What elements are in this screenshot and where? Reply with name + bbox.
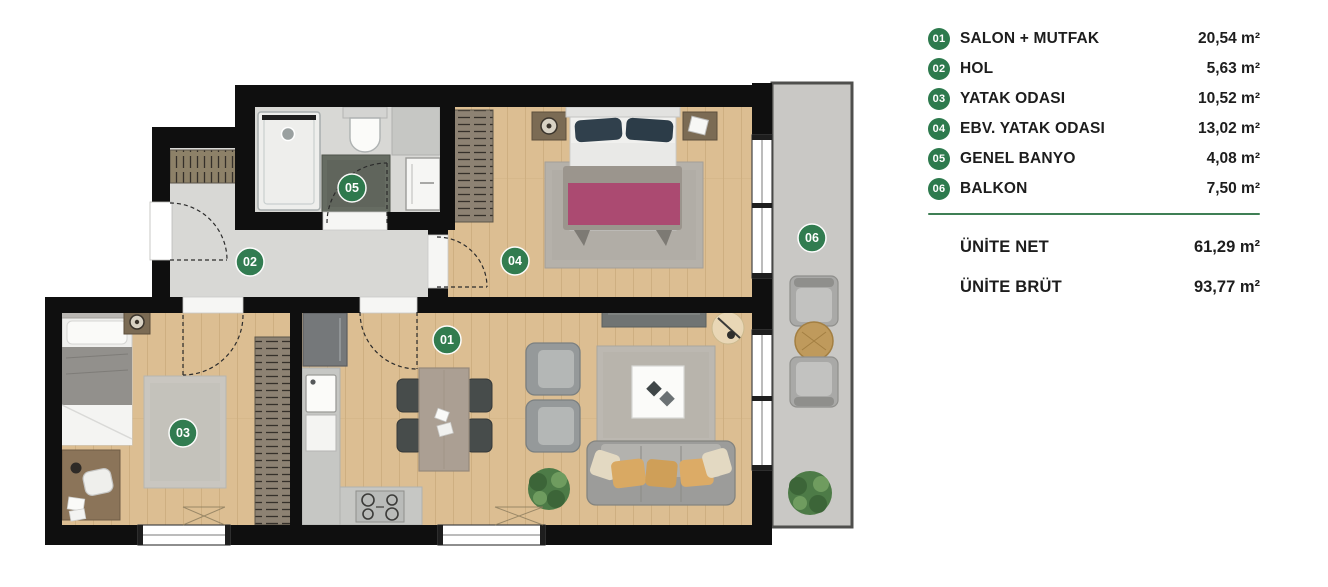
floor-plan-svg: 01 02 03 04 05 06 (40, 58, 870, 572)
bed-04-pink-throw (568, 183, 680, 225)
wall (752, 83, 772, 135)
unit-net-label: ÜNİTE NET (960, 238, 1049, 257)
unit-brut-label: ÜNİTE BRÜT (960, 278, 1062, 297)
shower-head-bar (262, 115, 316, 120)
bed-03-pillow (67, 321, 127, 344)
washing-machine (406, 158, 440, 210)
wardrobe-03 (255, 337, 292, 525)
wall (243, 297, 360, 313)
legend-area: 7,50 m² (1207, 180, 1260, 198)
unit-brut-value: 93,77 m² (1194, 278, 1260, 297)
desk-papers-2 (69, 509, 86, 521)
coat-rack (170, 150, 240, 183)
window-livingroom-south (438, 525, 545, 545)
bathroom-counter (392, 107, 440, 155)
wall (545, 525, 772, 545)
legend-badge: 01 (928, 28, 950, 50)
legend-label: GENEL BANYO (960, 150, 1076, 168)
entrance-opening (150, 202, 172, 260)
svg-text:03: 03 (176, 426, 190, 440)
faucet (310, 379, 315, 384)
legend-label: EBV. YATAK ODASI (960, 120, 1105, 138)
room-badge-04: 04 (501, 247, 529, 275)
room-badge-02: 02 (236, 248, 264, 276)
wall (45, 525, 138, 545)
legend-label: HOL (960, 60, 993, 78)
legend-area: 20,54 m² (1198, 30, 1260, 48)
window-bedroom03-south (138, 525, 230, 545)
sofa-cushion-1 (611, 458, 647, 489)
window-livingroom-east (752, 330, 772, 470)
wall (440, 85, 455, 230)
sofa-cushion-2 (645, 459, 678, 489)
wall (235, 85, 255, 230)
wall (752, 470, 772, 545)
room-badge-05: 05 (338, 174, 366, 202)
legend-badge: 04 (928, 118, 950, 140)
toilet-cistern (343, 107, 387, 118)
wall (235, 85, 772, 107)
wardrobe-04 (450, 110, 493, 222)
shower-tray (258, 112, 320, 210)
bed-03-sheet (62, 405, 132, 445)
legend-area: 4,08 m² (1207, 150, 1260, 168)
wall (45, 297, 62, 545)
legend-area: 5,63 m² (1207, 60, 1260, 78)
desk-lamp (71, 463, 82, 474)
kitchen-sink (306, 375, 336, 412)
legend-row: 06 BALKON 7,50 m² (928, 174, 1260, 204)
pillow-right (625, 117, 673, 142)
plant-balcony (788, 471, 832, 515)
wall (752, 278, 772, 330)
window-bedroom04-east (752, 135, 772, 278)
room-badge-03: 03 (169, 419, 197, 447)
legend: 01 SALON + MUTFAK 20,54 m² 02 HOL 5,63 m… (928, 24, 1260, 307)
bedroom03-door-opening (183, 297, 243, 313)
legend-badge: 06 (928, 178, 950, 200)
legend-label: YATAK ODASI (960, 90, 1065, 108)
legend-label: SALON + MUTFAK (960, 30, 1099, 48)
legend-badge: 02 (928, 58, 950, 80)
shower-drain (282, 128, 295, 141)
livingroom-door-opening (360, 297, 417, 313)
bedroom04-door-opening (428, 235, 448, 288)
legend-total-row: ÜNİTE BRÜT 93,77 m² (928, 267, 1260, 307)
svg-text:04: 04 (508, 254, 522, 268)
wall (290, 313, 302, 525)
svg-text:05: 05 (345, 181, 359, 195)
room-badge-01: 01 (433, 326, 461, 354)
dining-chair-r2 (466, 419, 492, 452)
wall (417, 297, 752, 313)
legend-area: 13,02 m² (1198, 120, 1260, 138)
hall-fixtures (170, 150, 240, 183)
svg-text:02: 02 (243, 255, 257, 269)
unit-net-value: 61,29 m² (1194, 238, 1260, 257)
legend-area: 10,52 m² (1198, 90, 1260, 108)
toilet-bowl (350, 118, 380, 152)
legend-row: 01 SALON + MUTFAK 20,54 m² (928, 24, 1260, 54)
wall (45, 297, 183, 313)
legend-row: 03 YATAK ODASI 10,52 m² (928, 84, 1260, 114)
wall (152, 148, 170, 202)
svg-text:06: 06 (805, 231, 819, 245)
legend-row: 02 HOL 5,63 m² (928, 54, 1260, 84)
room-badge-06: 06 (798, 224, 826, 252)
floor-plan: 01 02 03 04 05 06 (40, 58, 870, 572)
wall (428, 230, 448, 235)
legend-badge: 03 (928, 88, 950, 110)
bathroom-door-opening (323, 212, 387, 230)
svg-text:01: 01 (440, 333, 454, 347)
legend-badge: 05 (928, 148, 950, 170)
wall (152, 127, 240, 148)
bed-04-sheet (571, 143, 675, 167)
floor-plan-page: 01 02 03 04 05 06 (0, 0, 1328, 587)
legend-divider (928, 213, 1260, 215)
legend-total-row: ÜNİTE NET 61,29 m² (928, 227, 1260, 267)
dining-chair-r1 (466, 379, 492, 412)
plant-living (528, 468, 570, 510)
bed-04-headboard (566, 107, 680, 117)
pillow-left (574, 117, 622, 142)
wall (255, 212, 323, 230)
legend-row: 04 EBV. YATAK ODASI 13,02 m² (928, 114, 1260, 144)
legend-label: BALKON (960, 180, 1028, 198)
dishwasher (306, 415, 336, 451)
wall (230, 525, 438, 545)
legend-row: 05 GENEL BANYO 4,08 m² (928, 144, 1260, 174)
